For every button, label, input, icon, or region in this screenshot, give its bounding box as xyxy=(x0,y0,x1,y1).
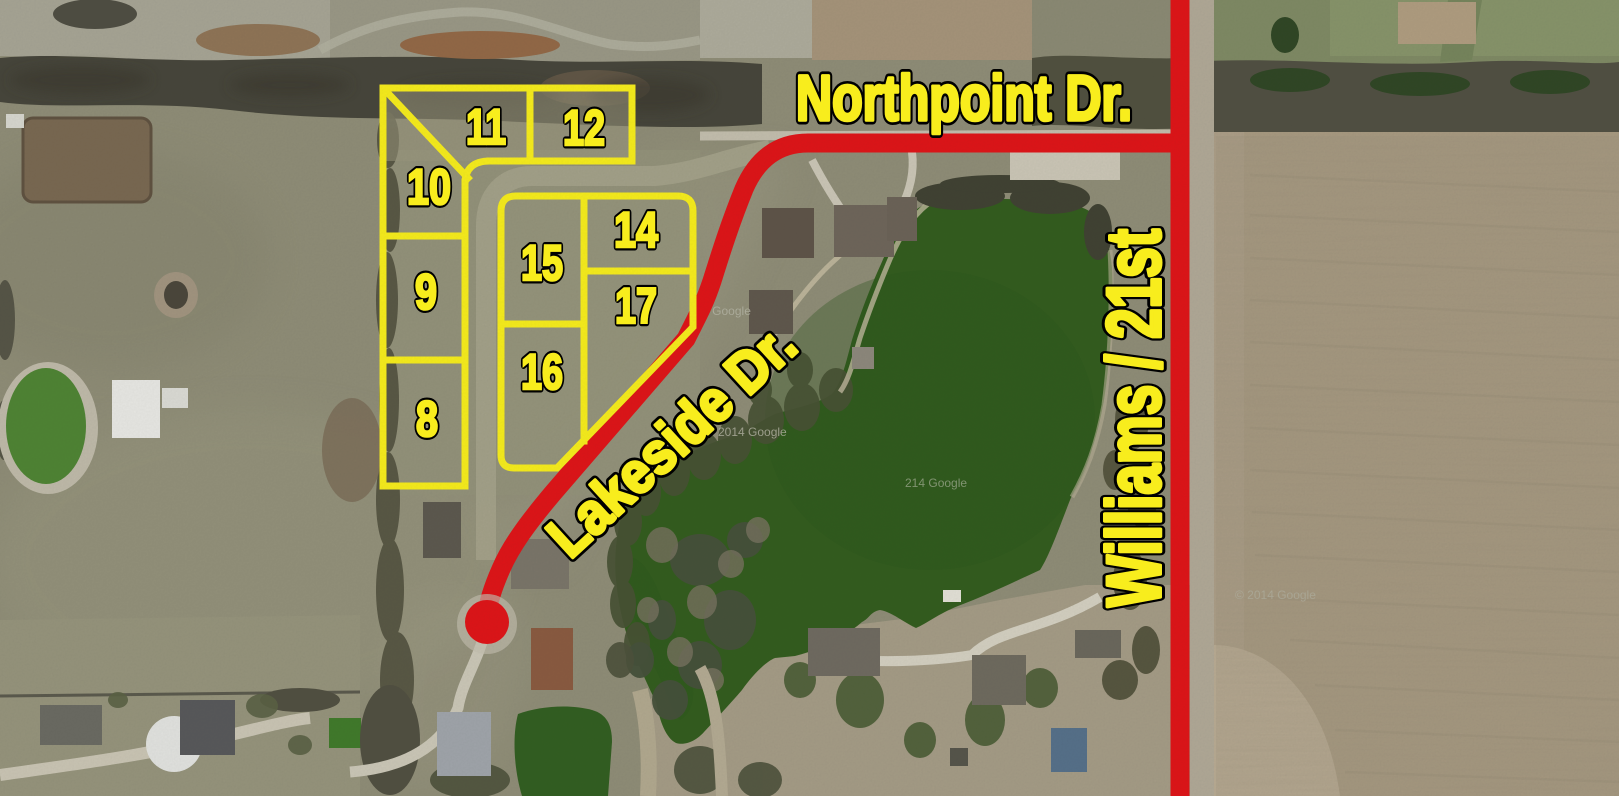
svg-text:16: 16 xyxy=(521,344,563,400)
svg-text:11: 11 xyxy=(466,99,506,155)
svg-text:8: 8 xyxy=(416,391,438,447)
svg-text:14: 14 xyxy=(614,202,658,258)
svg-text:17: 17 xyxy=(615,278,657,334)
svg-text:Williams / 21st: Williams / 21st xyxy=(1092,229,1177,607)
svg-text:9: 9 xyxy=(415,264,437,320)
svg-text:10: 10 xyxy=(407,159,451,215)
svg-text:Northpoint Dr.: Northpoint Dr. xyxy=(796,62,1132,134)
svg-text:15: 15 xyxy=(521,235,563,291)
svg-text:12: 12 xyxy=(563,100,605,156)
